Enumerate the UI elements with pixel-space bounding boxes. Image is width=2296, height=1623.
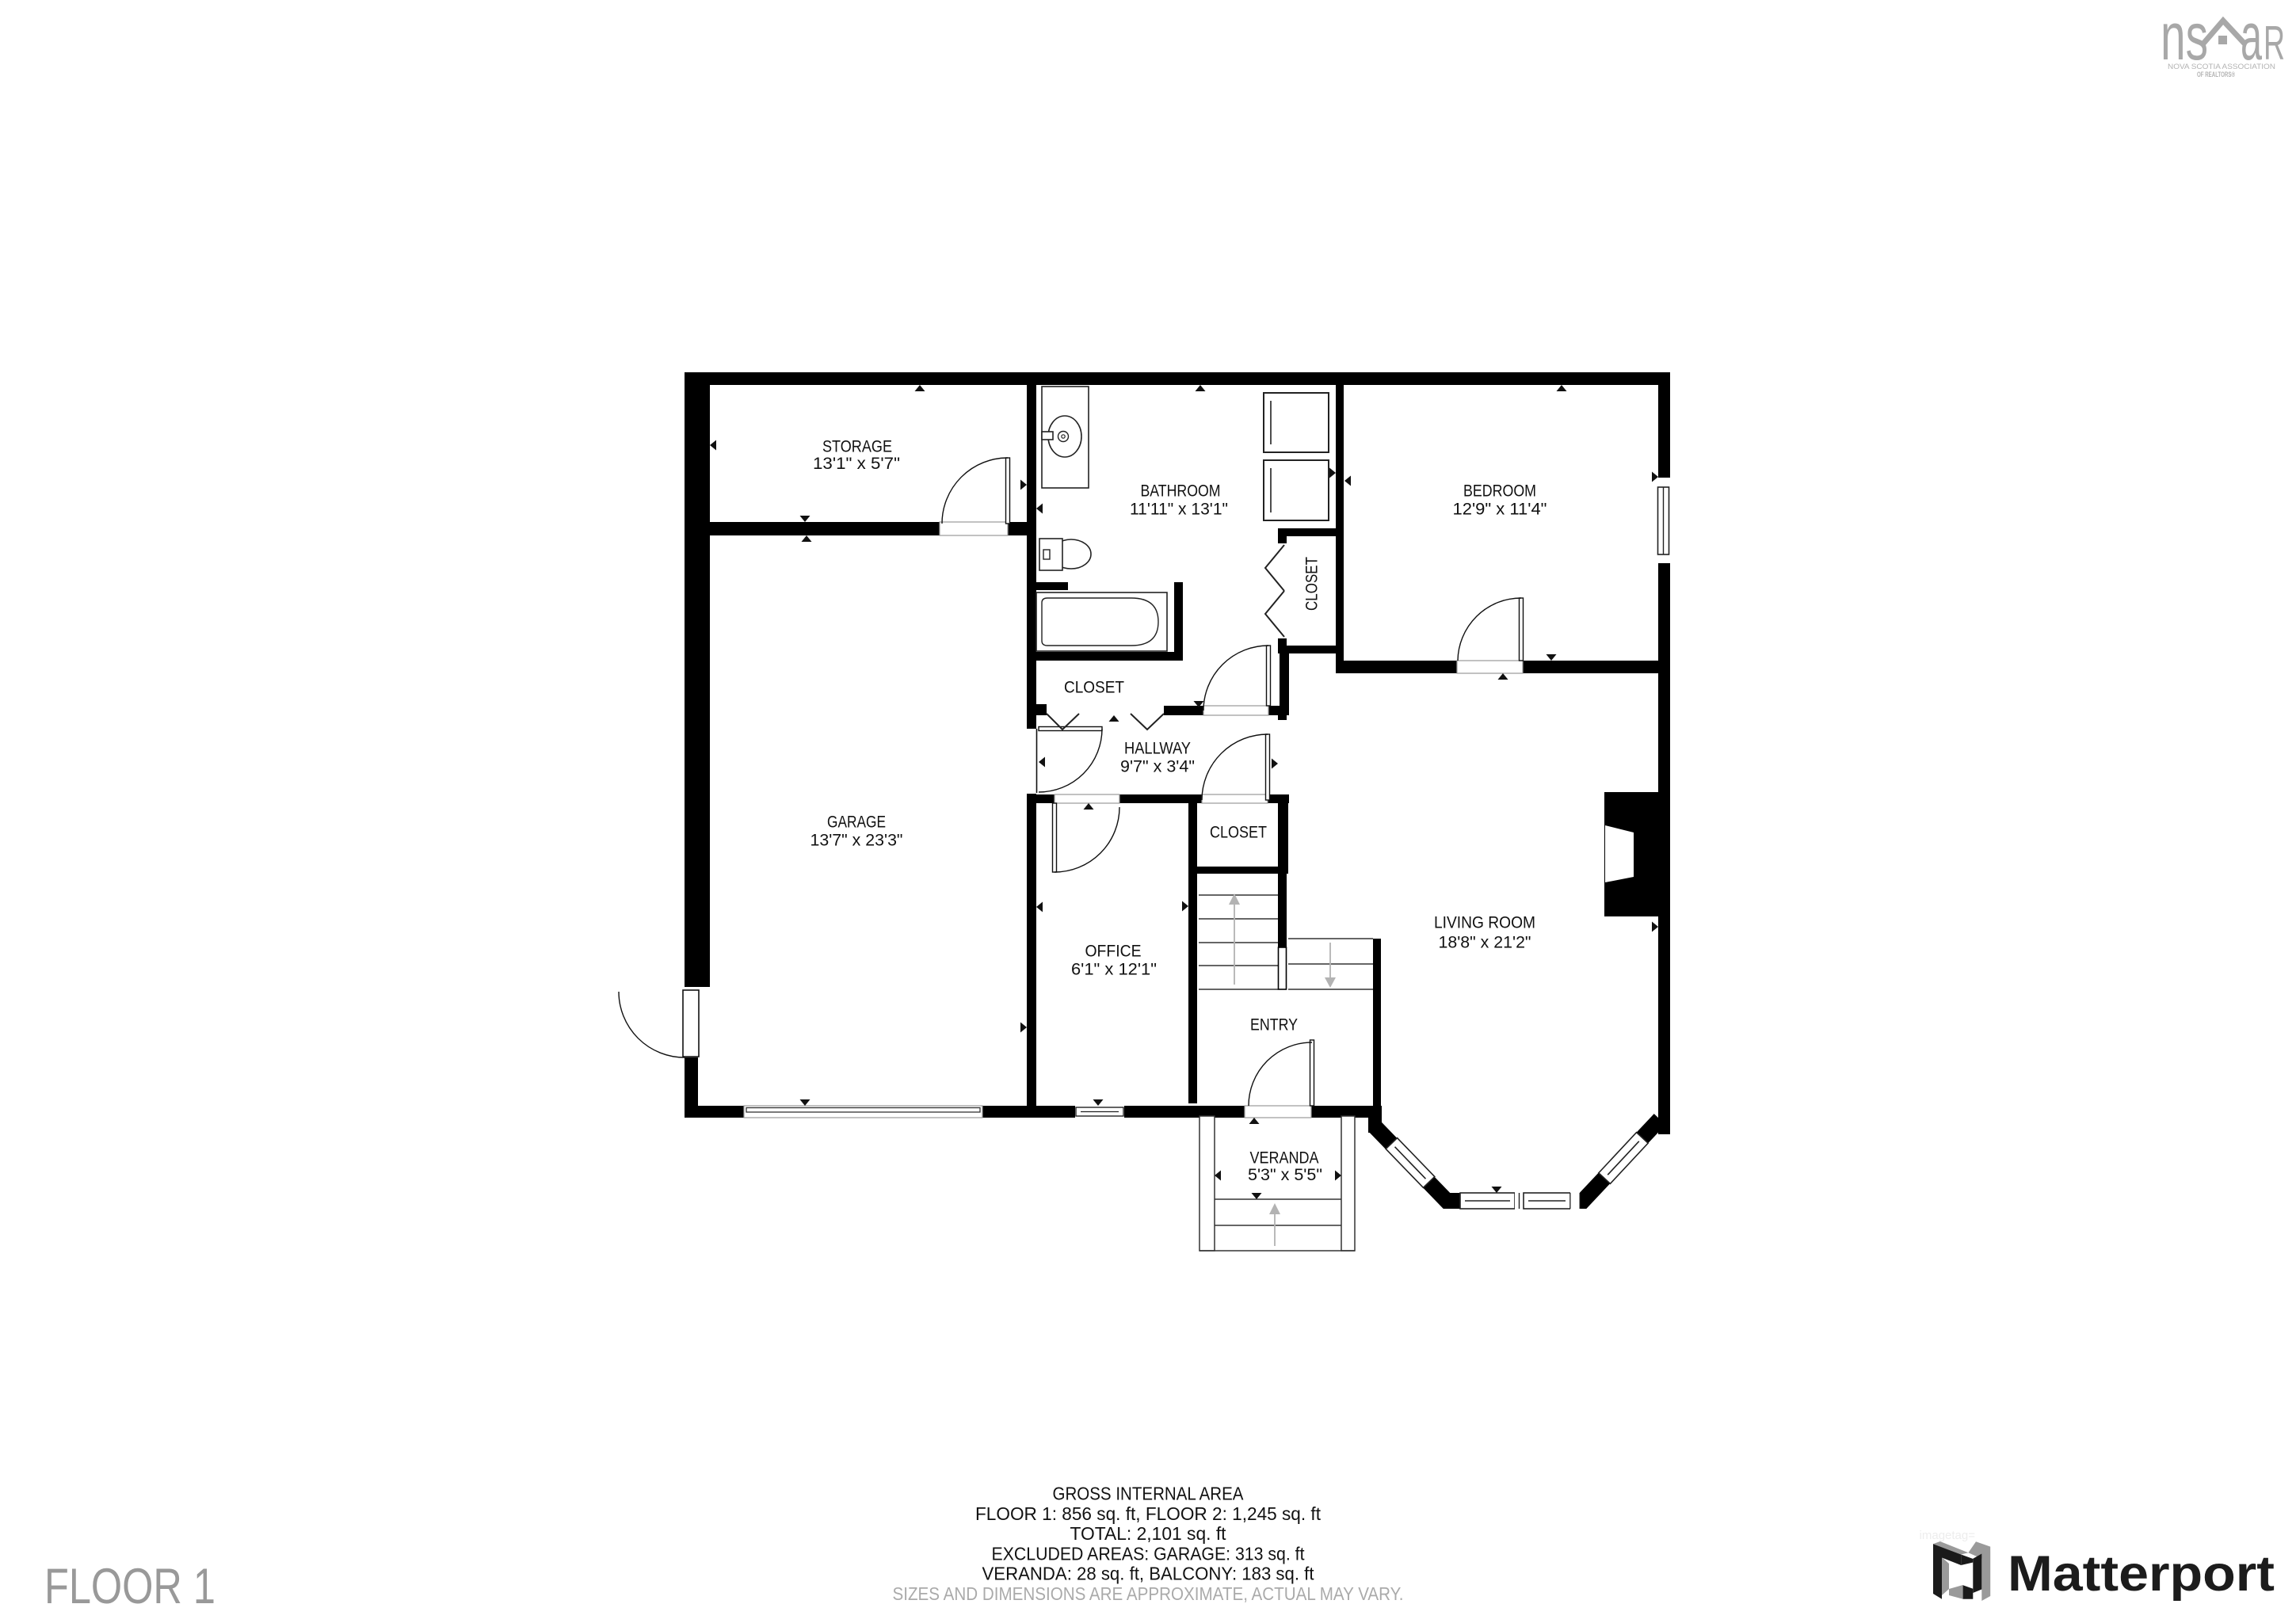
svg-text:FLOOR 1: FLOOR 1 [44, 1559, 215, 1614]
svg-text:CLOSET: CLOSET [1303, 557, 1322, 611]
svg-text:GARAGE: GARAGE [827, 813, 886, 832]
svg-text:OF REALTORS®: OF REALTORS® [2197, 70, 2235, 78]
svg-text:STORAGE: STORAGE [822, 438, 892, 456]
svg-text:R: R [2264, 17, 2285, 70]
svg-text:13'1" x 5'7": 13'1" x 5'7" [813, 455, 900, 473]
svg-text:EXCLUDED AREAS: GARAGE: 313 sq: EXCLUDED AREAS: GARAGE: 313 sq. ft [992, 1543, 1306, 1564]
svg-text:FLOOR 1: 856 sq. ft, FLOOR 2:: FLOOR 1: 856 sq. ft, FLOOR 2: 1,245 sq. … [975, 1503, 1322, 1524]
svg-text:SIZES AND DIMENSIONS ARE APPRO: SIZES AND DIMENSIONS ARE APPROXIMATE, AC… [893, 1583, 1404, 1604]
svg-text:OFFICE: OFFICE [1085, 943, 1142, 961]
svg-text:6'1" x 12'1": 6'1" x 12'1" [1071, 961, 1157, 979]
svg-text:CLOSET: CLOSET [1210, 824, 1267, 842]
svg-text:imagetag=: imagetag= [1920, 1529, 1976, 1542]
svg-text:13'7" x 23'3": 13'7" x 23'3" [810, 832, 903, 850]
svg-text:BEDROOM: BEDROOM [1463, 482, 1536, 501]
svg-text:VERANDA: 28 sq. ft, BALCONY: 1: VERANDA: 28 sq. ft, BALCONY: 183 sq. ft [982, 1564, 1315, 1584]
svg-text:11'11" x 13'1": 11'11" x 13'1" [1130, 501, 1228, 519]
svg-text:BATHROOM: BATHROOM [1141, 482, 1221, 501]
svg-text:VERANDA: VERANDA [1250, 1149, 1319, 1168]
svg-text:NOVA SCOTIA ASSOCIATION: NOVA SCOTIA ASSOCIATION [2168, 63, 2275, 70]
svg-text:9'7" x 3'4": 9'7" x 3'4" [1120, 758, 1195, 776]
svg-text:5'3" x 5'5": 5'3" x 5'5" [1248, 1166, 1322, 1184]
svg-text:12'9" x 11'4": 12'9" x 11'4" [1453, 501, 1547, 519]
svg-text:18'8" x 21'2": 18'8" x 21'2" [1439, 934, 1531, 952]
svg-text:HALLWAY: HALLWAY [1124, 740, 1191, 758]
svg-text:TOTAL: 2,101 sq. ft: TOTAL: 2,101 sq. ft [1070, 1523, 1227, 1544]
svg-text:ENTRY: ENTRY [1250, 1016, 1298, 1034]
svg-text:CLOSET: CLOSET [1064, 679, 1124, 697]
svg-text:LIVING ROOM: LIVING ROOM [1434, 914, 1535, 932]
svg-text:GROSS INTERNAL AREA: GROSS INTERNAL AREA [1053, 1484, 1245, 1504]
svg-text:Matterport: Matterport [2008, 1546, 2275, 1602]
